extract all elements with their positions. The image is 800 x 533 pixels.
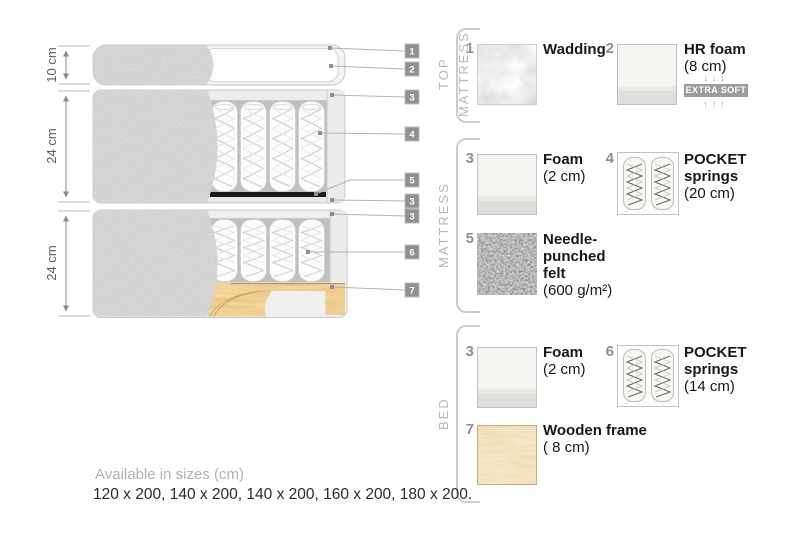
legend-num-7: 7 bbox=[460, 422, 474, 438]
bed-cross-section-diagram: 10 cm 24 cm 24 cm bbox=[0, 0, 440, 533]
tag-3: 3 bbox=[405, 90, 419, 104]
extra-soft-badge: EXTRA SOFT bbox=[684, 84, 748, 97]
felt-layer bbox=[210, 192, 326, 197]
legend-num-4: 4 bbox=[600, 151, 614, 167]
pocket-springs-swatch bbox=[617, 152, 679, 215]
legend-num-3b: 3 bbox=[460, 344, 474, 360]
legend-num-5: 5 bbox=[460, 231, 474, 247]
tag-1: 1 bbox=[405, 44, 419, 58]
dimension-indicators bbox=[58, 46, 90, 316]
arrows-up-icon: ↑↑↑ bbox=[684, 100, 748, 109]
legend-num-6: 6 bbox=[600, 344, 614, 360]
foam-swatch bbox=[477, 347, 537, 408]
arrows-down-icon: ↓↓↓ bbox=[684, 74, 748, 83]
legend-label-felt: Needle- punched felt (600 g/m²) bbox=[543, 231, 612, 299]
section-label-top-mattress: TOP MATTRESS bbox=[434, 22, 454, 126]
legend-num-2: 2 bbox=[600, 41, 614, 57]
tag-3b: 3 bbox=[405, 194, 419, 208]
tag-7: 7 bbox=[405, 283, 419, 297]
legend-label-foam-bed: Foam (2 cm) bbox=[543, 344, 586, 378]
wood-swatch bbox=[477, 425, 537, 485]
top-mattress-fabric bbox=[86, 45, 214, 85]
legend-label-wooden-frame: Wooden frame ( 8 cm) bbox=[543, 422, 647, 456]
svg-text:3: 3 bbox=[409, 93, 414, 104]
svg-text:5: 5 bbox=[409, 176, 415, 187]
bed-fabric bbox=[86, 210, 218, 317]
legend-num-3: 3 bbox=[460, 151, 474, 167]
svg-text:6: 6 bbox=[409, 248, 414, 259]
mattress-section bbox=[86, 90, 345, 203]
legend-num-1: 1 bbox=[460, 41, 474, 57]
top-mattress-section bbox=[86, 45, 345, 85]
mattress-construction-infographic: 10 cm 24 cm 24 cm bbox=[0, 0, 800, 533]
svg-text:7: 7 bbox=[409, 286, 414, 297]
legend-label-wadding: Wadding bbox=[543, 41, 606, 58]
tag-5: 5 bbox=[405, 173, 419, 187]
svg-text:2: 2 bbox=[409, 65, 414, 76]
svg-text:4: 4 bbox=[409, 130, 415, 141]
foam-swatch bbox=[617, 44, 677, 105]
tag-2: 2 bbox=[405, 62, 419, 76]
mattress-fabric bbox=[86, 90, 218, 203]
sizes-list: 120 x 200, 140 x 200, 140 x 200, 160 x 2… bbox=[93, 486, 472, 504]
section-label-mattress: MATTRESS bbox=[434, 138, 454, 313]
layer-tags: 1 2 3 4 5 3 3 6 7 bbox=[405, 44, 419, 297]
legend-label-pocket-springs-14: POCKET springs (14 cm) bbox=[684, 344, 747, 395]
svg-text:1: 1 bbox=[409, 47, 415, 58]
tag-4: 4 bbox=[405, 127, 419, 141]
legend-label-hr-foam: HR foam (8 cm) bbox=[684, 41, 746, 75]
foam-swatch bbox=[477, 154, 537, 215]
svg-text:3: 3 bbox=[409, 212, 414, 223]
tag-6: 6 bbox=[405, 245, 419, 259]
pocket-springs-swatch bbox=[617, 345, 679, 407]
dim-label-bed: 24 cm bbox=[44, 245, 59, 280]
bed-section bbox=[86, 210, 347, 318]
dim-label-mattress: 24 cm bbox=[44, 128, 59, 163]
wadding-swatch bbox=[477, 44, 537, 105]
tag-3c: 3 bbox=[405, 209, 419, 223]
svg-text:3: 3 bbox=[409, 197, 414, 208]
legend-label-pocket-springs-20: POCKET springs (20 cm) bbox=[684, 151, 747, 202]
felt-swatch bbox=[477, 233, 537, 295]
sizes-title: Available in sizes (cm) bbox=[95, 466, 244, 483]
section-label-bed: BED bbox=[434, 325, 454, 503]
legend-label-foam: Foam (2 cm) bbox=[543, 151, 586, 185]
dim-label-top-mattress: 10 cm bbox=[44, 47, 59, 82]
